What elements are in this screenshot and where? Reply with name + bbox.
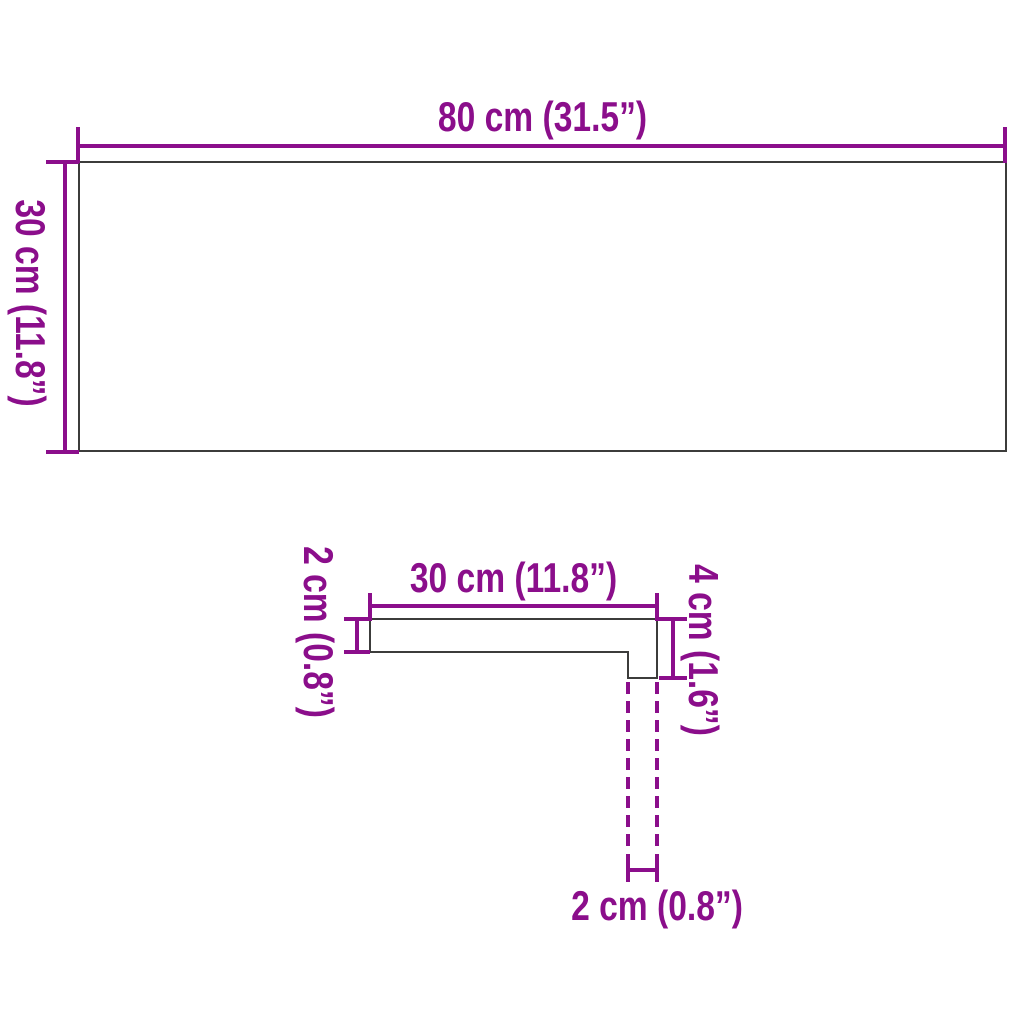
profile-nosing-height-dimension-line [671, 619, 675, 678]
front-height-dimension-tick-bottom [46, 450, 79, 454]
front-height-dimension-label: 30 cm (11.8”) [8, 187, 52, 419]
profile-width-dimension-line [370, 604, 657, 608]
profile-width-dimension-label: 30 cm (11.8”) [399, 556, 629, 600]
front-height-dimension-line [63, 162, 67, 452]
front-width-dimension-tick-left [76, 127, 80, 163]
diagram-canvas: 80 cm (31.5”) 30 cm (11.8”) 30 cm (11.8”… [0, 0, 1024, 1024]
profile-thickness-dimension-label: 2 cm (0.8”) [296, 528, 340, 736]
front-height-dimension-tick-top [46, 160, 79, 164]
front-width-dimension-label: 80 cm (31.5”) [171, 95, 914, 139]
front-width-dimension-tick-right [1003, 127, 1007, 163]
profile-nosing-depth-dimension-label: 2 cm (0.8”) [537, 884, 777, 928]
profile-thickness-dimension-tick-bottom [344, 650, 370, 654]
profile-thickness-dimension-line [355, 619, 359, 652]
profile-nosing-height-dimension-tick-bottom [659, 676, 687, 680]
tread-front-outline [78, 161, 1007, 452]
nosing-projection-dashed-line-left [626, 682, 630, 852]
profile-nosing-depth-dimension-line [626, 868, 659, 872]
profile-thickness-dimension-tick-top [344, 617, 370, 621]
profile-nosing-height-dimension-tick-top [659, 617, 687, 621]
tread-profile-outline [369, 618, 659, 680]
nosing-projection-dashed-line-right [655, 682, 659, 852]
front-width-dimension-line [78, 144, 1007, 148]
profile-nosing-height-dimension-label: 4 cm (1.6”) [681, 546, 725, 754]
tread-profile-path [370, 619, 657, 678]
